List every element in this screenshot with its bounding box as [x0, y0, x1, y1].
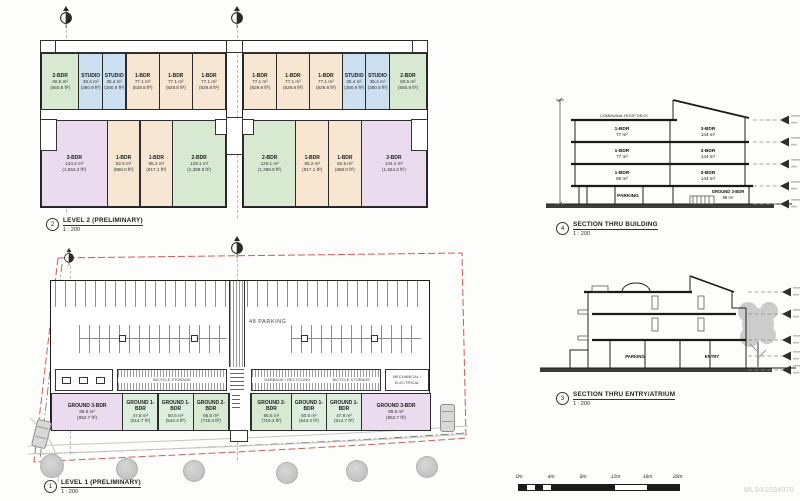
scale-tick: 20m	[672, 474, 683, 480]
elevator	[242, 119, 254, 135]
scale-tick: 8m	[579, 474, 587, 480]
section-entry-title-block: 3 SECTION THRU ENTRY/ATRIUM 1 : 200	[556, 391, 675, 407]
level1-building: 48 PARKING BICYCLE STORAGE GARBAGE / REC…	[50, 280, 430, 430]
level2-plan: 2-BDR60.5 m²(650.8 ft²)STUDIO35.4 m²(380…	[38, 14, 430, 214]
section-thru-building: COMMUNAL ROOF DECK 1-BDR 77 m² 3-BDR 144…	[540, 92, 798, 220]
scale-segment	[527, 485, 535, 490]
north-arrow-icon	[230, 6, 244, 28]
unit-ground-1-bdr: GROUND 1-BDR47.8 m²(514.7 ft²)	[326, 393, 362, 431]
drawing-title: LEVEL 2 (PRELIMINARY)	[63, 217, 143, 226]
column	[191, 335, 198, 342]
unit-ground-1-bdr: GROUND 1-BDR50.5 m²(543.3 ft²)	[158, 393, 194, 431]
svg-text:88 m²: 88 m²	[723, 195, 734, 200]
north-arrow-icon	[63, 248, 75, 266]
level2-title-block: 2 LEVEL 2 (PRELIMINARY) 1 : 200	[46, 217, 143, 233]
unit-1-bdr: 1-BDR77.1 m²(829.8 ft²)	[309, 53, 343, 110]
bike-storage: BICYCLE STORAGE	[117, 369, 227, 391]
svg-text:85 m²: 85 m²	[616, 176, 628, 181]
level2-bottom-left-units: 3-BDR144.4 m²(1,554.2 ft²)1-BDR82.5 m²(8…	[41, 120, 226, 207]
parking-stalls	[247, 281, 425, 307]
roof-deck-label: COMMUNAL ROOF DECK	[600, 113, 648, 118]
mechanical-room: MECHANICAL / ELECTRICAL	[385, 369, 429, 391]
stair-core	[226, 117, 243, 155]
corridor	[41, 41, 226, 53]
unit-studio: STUDIO35.4 m²(380.9 ft²)	[78, 53, 102, 110]
unit-1-bdr: 1-BDR77.1 m²(829.8 ft²)	[192, 53, 226, 110]
unit-ground-3-bdr: GROUND 3-BDR88.5 m²(952.7 ft²)	[361, 393, 431, 431]
tree	[40, 454, 64, 478]
ground-left-units: GROUND 3-BDR88.5 m²(952.7 ft²)GROUND 1-B…	[51, 393, 229, 431]
architectural-sheet: 2-BDR60.5 m²(650.8 ft²)STUDIO35.4 m²(380…	[0, 0, 800, 501]
scale-segment	[551, 485, 615, 490]
level2-top-right-units: 1-BDR77.1 m²(829.8 ft²)1-BDR77.1 m²(829.…	[243, 53, 427, 110]
svg-text:144 m²: 144 m²	[701, 132, 716, 137]
drawing-title: LEVEL 1 (PRELIMINARY)	[61, 479, 141, 488]
parking-stalls	[79, 325, 227, 353]
stair	[40, 40, 56, 53]
parking-label: PARKING	[625, 354, 645, 359]
drawing-scale: 1 : 200	[63, 227, 143, 233]
ground-unit-label: GROUND 3-BDR	[712, 189, 745, 194]
drawing-title: SECTION THRU ENTRY/ATRIUM	[573, 391, 675, 400]
entry-vestibule	[230, 430, 248, 442]
column	[301, 335, 308, 342]
corridor	[243, 41, 427, 53]
elevator	[215, 119, 227, 135]
ground-right-units: GROUND 2-BDR66.5 m²(715.3 ft²)GROUND 1-B…	[251, 393, 431, 431]
scale-tick: 12m	[610, 474, 621, 480]
unit-1-bdr: 1-BDR77.1 m²(829.8 ft²)	[126, 53, 160, 110]
unit-ground-1-bdr: GROUND 1-BDR47.8 m²(514.7 ft²)	[122, 393, 158, 431]
unit-1-bdr: 1-BDR77.1 m²(829.8 ft²)	[159, 53, 193, 110]
unit-ground-2-bdr: GROUND 2-BDR66.5 m²(715.3 ft²)	[251, 393, 292, 431]
svg-text:144 m²: 144 m²	[701, 154, 716, 159]
bike-storage: GARBAGE / RECYCLING BICYCLE STORAGE	[251, 369, 381, 391]
tree	[346, 460, 368, 482]
section-building-title-block: 4 SECTION THRU BUILDING 1 : 200	[556, 221, 658, 237]
core-stairs	[230, 369, 244, 391]
scale-bar: 0m 4m 8m 12m 16m 20m	[518, 474, 684, 494]
parking-label: PARKING	[617, 193, 639, 199]
tree	[416, 456, 438, 478]
unit-2-bdr: 2-BDR60.5 m²(650.8 ft²)	[389, 53, 427, 110]
level1-plan: 48 PARKING BICYCLE STORAGE GARBAGE / REC…	[28, 238, 468, 483]
stair	[412, 40, 428, 53]
entry-core	[229, 393, 251, 431]
corridor-bridge	[226, 40, 243, 53]
scale-bar-blocks	[518, 484, 680, 491]
stall-divider	[291, 338, 421, 339]
tree	[116, 458, 138, 480]
elec-label: ELECTRICAL	[386, 381, 428, 386]
unit-1-bdr: 1-BDR85.2 m²(917.1 ft²)	[140, 120, 174, 207]
atrium-shaft	[229, 281, 245, 367]
column	[371, 335, 378, 342]
svg-text:77 m²: 77 m²	[616, 154, 628, 159]
car	[440, 404, 455, 432]
scale-tick: 16m	[642, 474, 653, 480]
drawing-scale: 1 : 200	[61, 489, 141, 495]
drawing-number: 4	[556, 222, 569, 235]
level-datums	[753, 115, 800, 209]
unit-1-bdr: 1-BDR82.5 m²(888.0 ft²)	[107, 120, 141, 207]
mls-watermark: MLS®1034070	[744, 487, 794, 494]
unit-1-bdr: 1-BDR77.1 m²(829.8 ft²)	[243, 53, 277, 110]
scale-segment	[647, 485, 679, 490]
drawing-scale: 1 : 200	[573, 231, 658, 237]
unit-ground-3-bdr: GROUND 3-BDR88.5 m²(952.7 ft²)	[51, 393, 123, 431]
scale-segment	[615, 485, 647, 490]
unit-ground-1-bdr: GROUND 1-BDR50.5 m²(543.3 ft²)	[291, 393, 327, 431]
stair	[411, 119, 428, 151]
tree	[183, 460, 205, 482]
unit-1-bdr: 1-BDR77.1 m²(829.8 ft²)	[276, 53, 310, 110]
drawing-scale: 1 : 200	[573, 401, 675, 407]
parking-count-label: 48 PARKING	[249, 319, 287, 326]
svg-text:144 m²: 144 m²	[701, 176, 716, 181]
scale-segment	[543, 485, 551, 490]
stair	[40, 119, 57, 151]
scale-tick: 4m	[547, 474, 555, 480]
unit-2-bdr: 2-BDR60.5 m²(650.8 ft²)	[41, 53, 79, 110]
unit-studio: STUDIO35.4 m²(380.9 ft²)	[365, 53, 389, 110]
parking-stalls	[291, 325, 421, 353]
unit-1-bdr: 1-BDR82.5 m²(888.0 ft²)	[328, 120, 362, 207]
level2-left-wing: 2-BDR60.5 m²(650.8 ft²)STUDIO35.4 m²(380…	[40, 40, 227, 208]
column	[119, 335, 126, 342]
scale-segment	[535, 485, 543, 490]
amenity-room	[55, 369, 113, 391]
level1-title-block: 1 LEVEL 1 (PRELIMINARY) 1 : 200	[44, 479, 141, 495]
drawing-title: SECTION THRU BUILDING	[573, 221, 658, 230]
level2-bottom-right-units: 2-BDR129.1 m²(1,389.8 ft²)1-BDR85.2 m²(9…	[243, 120, 427, 207]
north-arrow-icon	[59, 6, 73, 28]
scale-bar-ticks: 0m 4m 8m 12m 16m 20m	[518, 474, 684, 483]
unit-studio: STUDIO35.4 m²(380.9 ft²)	[102, 53, 126, 110]
north-arrow-icon	[230, 236, 244, 258]
unit-1-bdr: 1-BDR85.2 m²(917.1 ft²)	[295, 120, 329, 207]
unit-ground-2-bdr: GROUND 2-BDR66.5 m²(715.3 ft²)	[193, 393, 229, 431]
parking-stalls	[55, 281, 227, 307]
level2-right-wing: 1-BDR77.1 m²(829.8 ft²)1-BDR77.1 m²(829.…	[242, 40, 428, 208]
drawing-number: 3	[556, 392, 569, 405]
scale-tick: 0m	[515, 474, 523, 480]
stall-divider	[79, 338, 227, 339]
scale-segment	[519, 485, 527, 490]
section-thru-entry: PARKING ENTRY	[540, 252, 798, 387]
drawing-number: 2	[46, 218, 59, 231]
entry-label: ENTRY	[705, 354, 720, 359]
unit-studio: STUDIO35.4 m²(380.9 ft²)	[342, 53, 366, 110]
level2-top-left-units: 2-BDR60.5 m²(650.8 ft²)STUDIO35.4 m²(380…	[41, 53, 226, 110]
tree	[738, 302, 778, 368]
drawing-number: 1	[44, 480, 57, 493]
tree	[276, 462, 298, 484]
svg-text:77 m²: 77 m²	[616, 132, 628, 137]
